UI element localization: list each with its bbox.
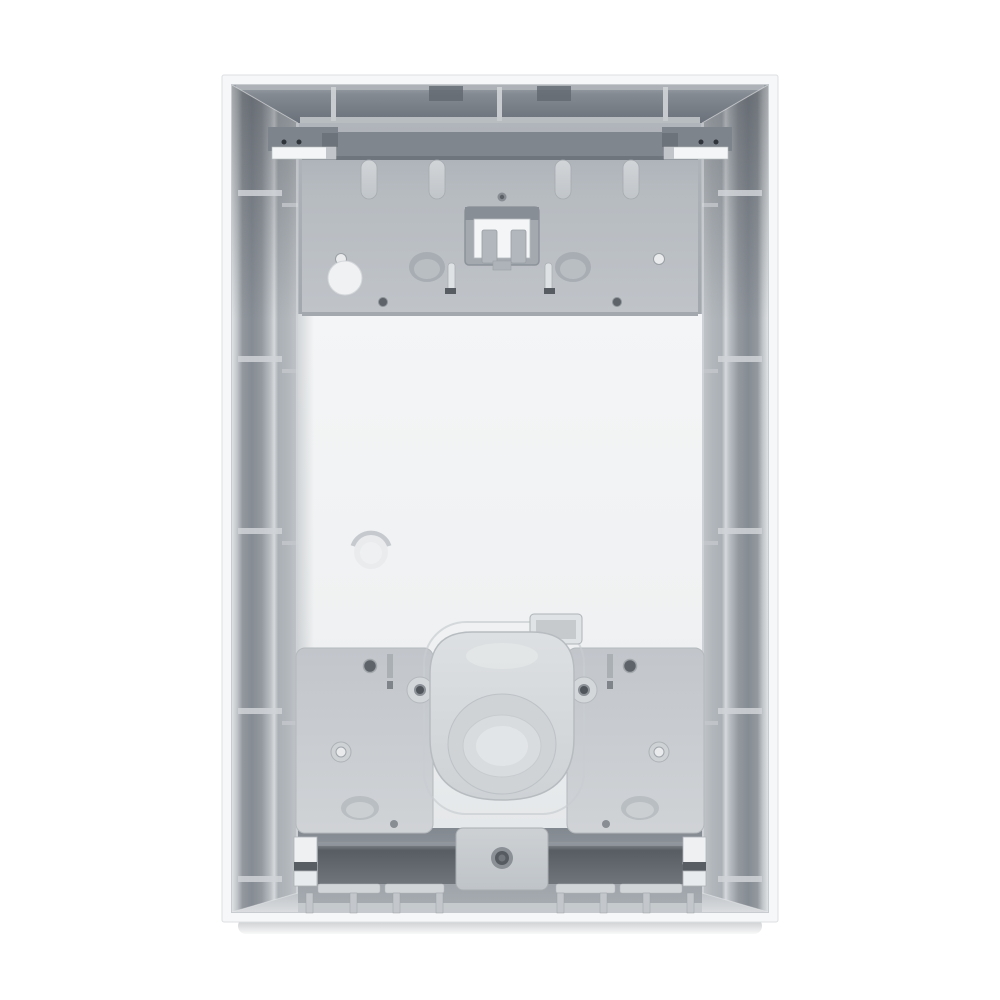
bottom-peg [393, 893, 400, 913]
wall-top-rib [331, 87, 336, 121]
plate-top-edge-shadow [336, 156, 664, 160]
plate-top-edge [336, 132, 664, 160]
rail-clip-left [294, 837, 317, 886]
cable-hole-large [328, 261, 362, 295]
wall-inner-rib [282, 369, 298, 373]
bottom-peg [436, 893, 443, 913]
retainer-tab [361, 160, 377, 199]
center-pilot-hole-inner [500, 195, 504, 199]
rivet-dot [379, 298, 388, 307]
bottom-plate-left [296, 648, 433, 833]
latch-recess-top [465, 207, 539, 220]
wall-rib [238, 876, 282, 882]
grommet-ear-hole-right [579, 685, 589, 695]
bottom-peg [306, 893, 313, 913]
wall-top [232, 85, 768, 123]
screw-hole-dark [364, 660, 377, 673]
grommet-ear-hole-left [415, 685, 425, 695]
wall-left [232, 85, 299, 912]
bottom-strip [385, 884, 444, 893]
wall-right [702, 85, 769, 912]
bottom-strip [318, 884, 380, 893]
hinge-clip-bar-cap [326, 147, 336, 159]
grommet-top-highlight [466, 643, 538, 669]
latch-foot [493, 261, 511, 270]
hinge-clip-step [322, 133, 338, 147]
rail-clip-right [683, 837, 706, 886]
rivet-dot-bottom [390, 820, 398, 828]
wall-top-rib [497, 87, 502, 121]
slot-groove [387, 654, 393, 678]
wall-top-ledge [300, 117, 700, 123]
guide-slot [448, 263, 455, 291]
rail-clip-gap [294, 862, 317, 871]
wall-rib [238, 356, 282, 362]
oval-knockout-inner [414, 259, 440, 279]
product-photo-stage [0, 0, 1000, 1000]
oval-knockout-bottom-inner [346, 802, 374, 818]
slot-groove-end [387, 681, 393, 689]
dome-knockout-center [360, 542, 382, 564]
wall-top-recess [537, 86, 571, 101]
hinge-clip-right [662, 127, 732, 159]
retainer-tab [429, 160, 445, 199]
wall-inner-rib [282, 541, 298, 545]
wall-left-shade [232, 85, 298, 320]
grommet-membrane-center [476, 726, 528, 766]
plate-bottom-edge [302, 312, 698, 316]
wall-inner-rib [282, 203, 298, 207]
bottom-plate-right [567, 648, 704, 833]
bottom-peg [350, 893, 357, 913]
floor-bottom-band [298, 903, 702, 913]
wall-top-rib [663, 87, 668, 121]
hinge-clip-pin [297, 140, 302, 145]
latch-prong [511, 230, 526, 263]
ring-hole-center [336, 747, 346, 757]
hinge-clip-left [268, 127, 338, 159]
wall-rib [238, 708, 282, 714]
wall-rib [238, 528, 282, 534]
wall-top-recess [429, 86, 463, 101]
hinge-clip-pin [282, 140, 287, 145]
rail-clip-top [294, 837, 317, 864]
wall-rib [238, 190, 282, 196]
mounting-box-illustration [0, 0, 1000, 1000]
bracket-screw-center [499, 855, 506, 862]
center-latch-bracket [465, 207, 539, 270]
guide-slot-foot [445, 288, 456, 294]
bottom-center-bracket [456, 828, 548, 890]
latch-prong [482, 230, 497, 263]
rail-clip-bottom [294, 871, 317, 886]
